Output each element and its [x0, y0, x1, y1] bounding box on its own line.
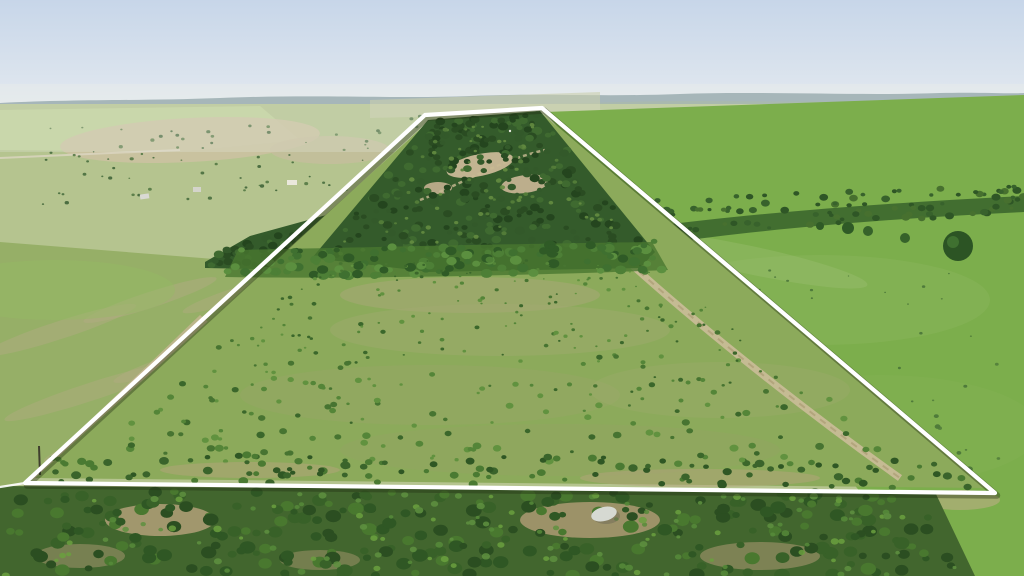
scene-canvas	[0, 0, 1024, 576]
aerial-photo	[0, 0, 1024, 576]
